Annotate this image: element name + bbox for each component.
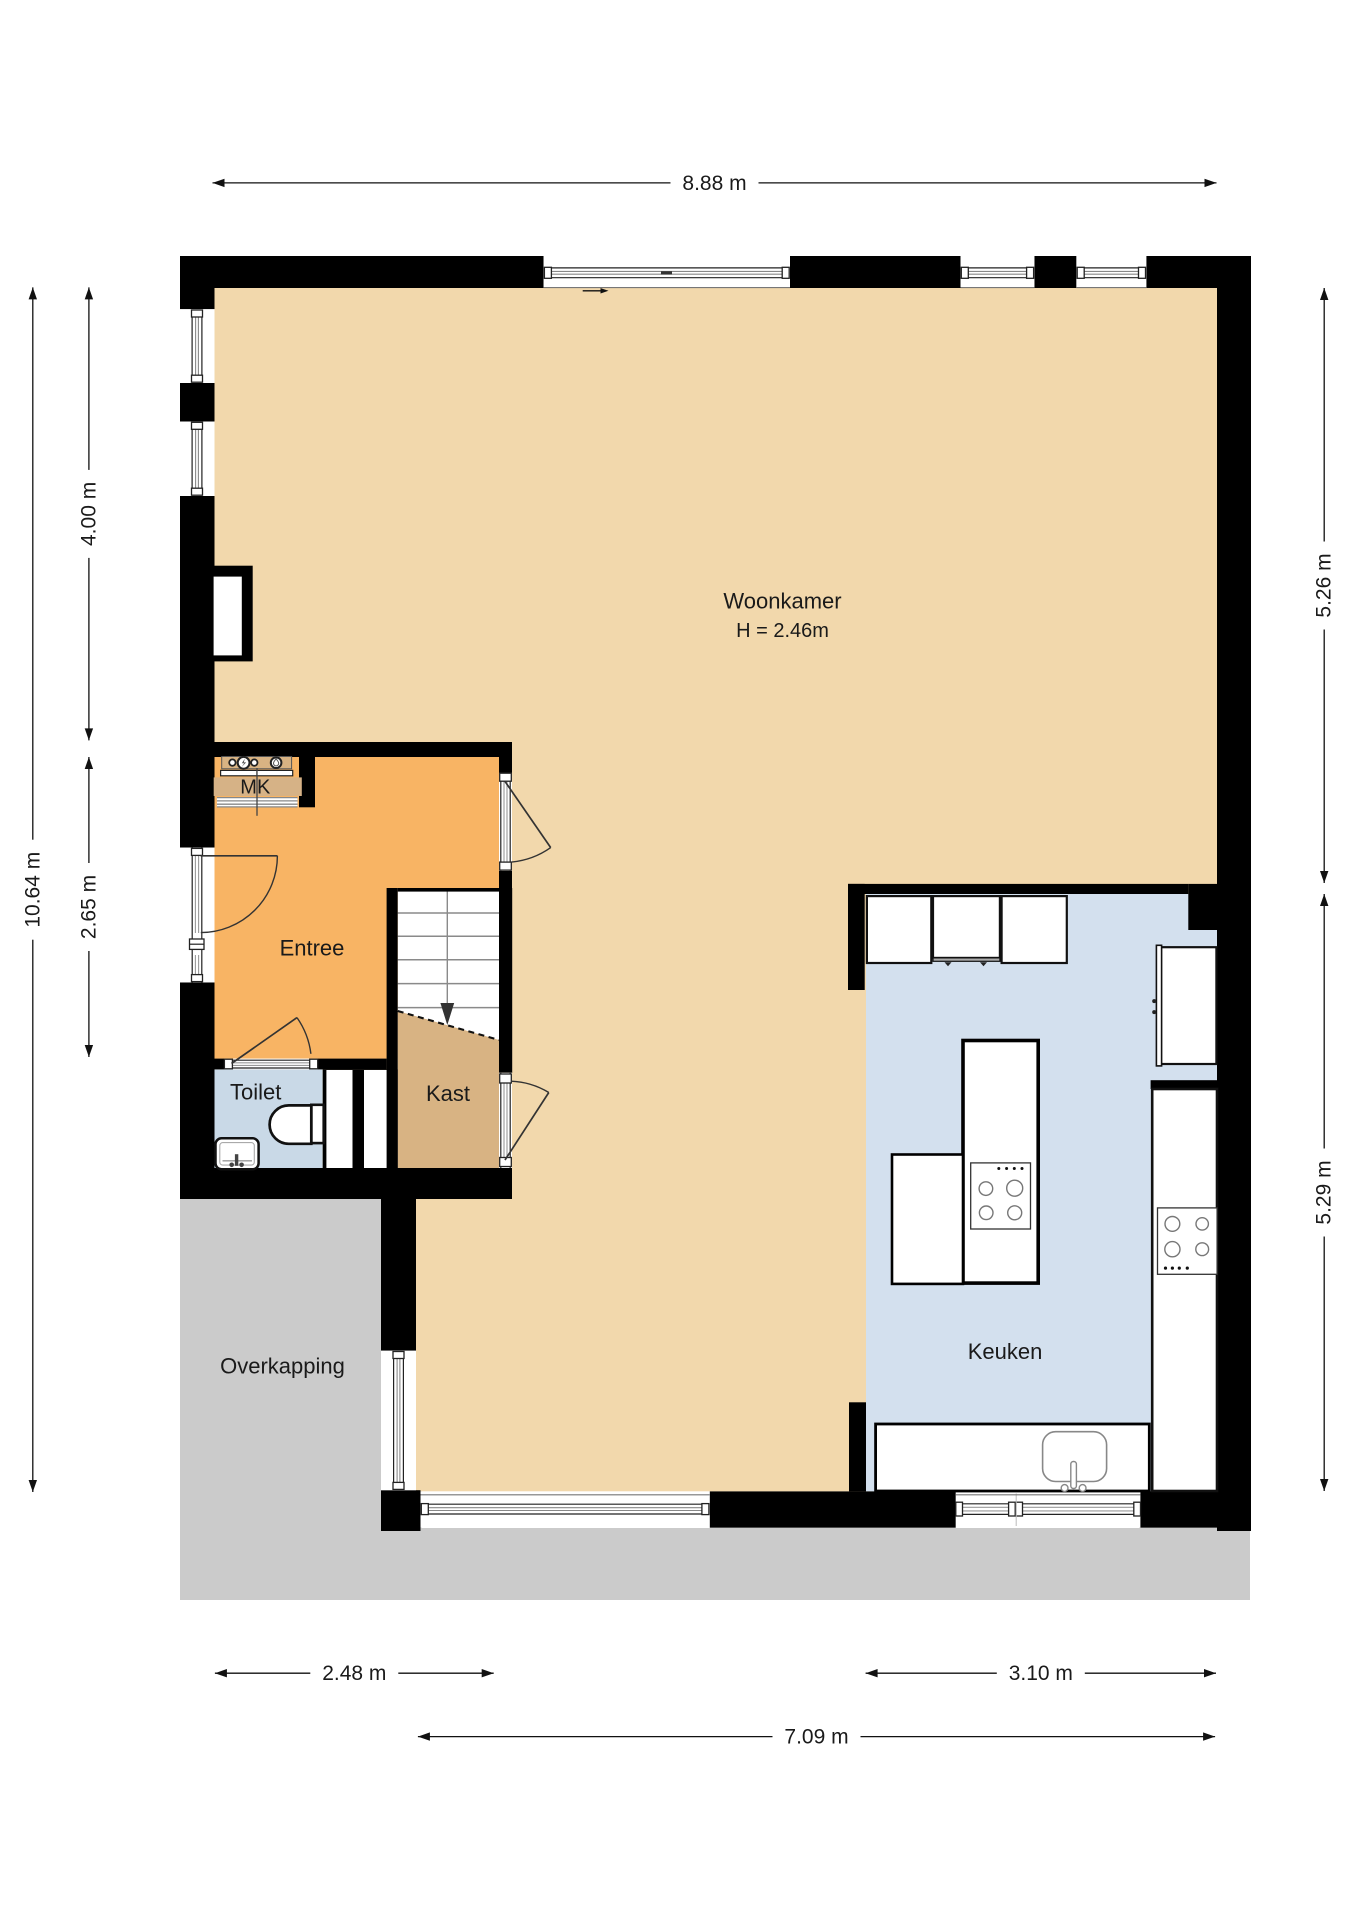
svg-text:10.64 m: 10.64 m xyxy=(21,852,44,928)
svg-text:4.00 m: 4.00 m xyxy=(77,482,100,546)
svg-text:Keuken: Keuken xyxy=(968,1339,1043,1364)
svg-text:3.10 m: 3.10 m xyxy=(1009,1662,1073,1685)
svg-text:MK: MK xyxy=(240,777,271,799)
svg-text:Entree: Entree xyxy=(280,936,345,961)
svg-text:H = 2.46m: H = 2.46m xyxy=(736,620,829,642)
svg-text:5.29 m: 5.29 m xyxy=(1313,1160,1336,1224)
svg-text:7.09 m: 7.09 m xyxy=(784,1726,848,1749)
svg-text:Woonkamer: Woonkamer xyxy=(723,589,841,614)
svg-text:Toilet: Toilet xyxy=(230,1080,281,1105)
svg-text:8.88 m: 8.88 m xyxy=(682,172,746,195)
svg-text:Overkapping: Overkapping xyxy=(220,1354,345,1379)
svg-text:5.26 m: 5.26 m xyxy=(1313,553,1336,617)
svg-text:Kast: Kast xyxy=(426,1081,470,1106)
svg-text:2.65 m: 2.65 m xyxy=(77,875,100,939)
svg-text:2.48 m: 2.48 m xyxy=(322,1662,386,1685)
